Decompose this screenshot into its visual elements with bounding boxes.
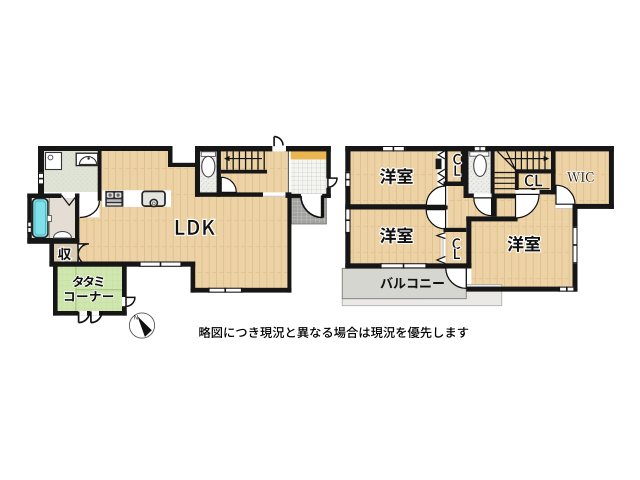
svg-text:N: N — [134, 316, 138, 322]
